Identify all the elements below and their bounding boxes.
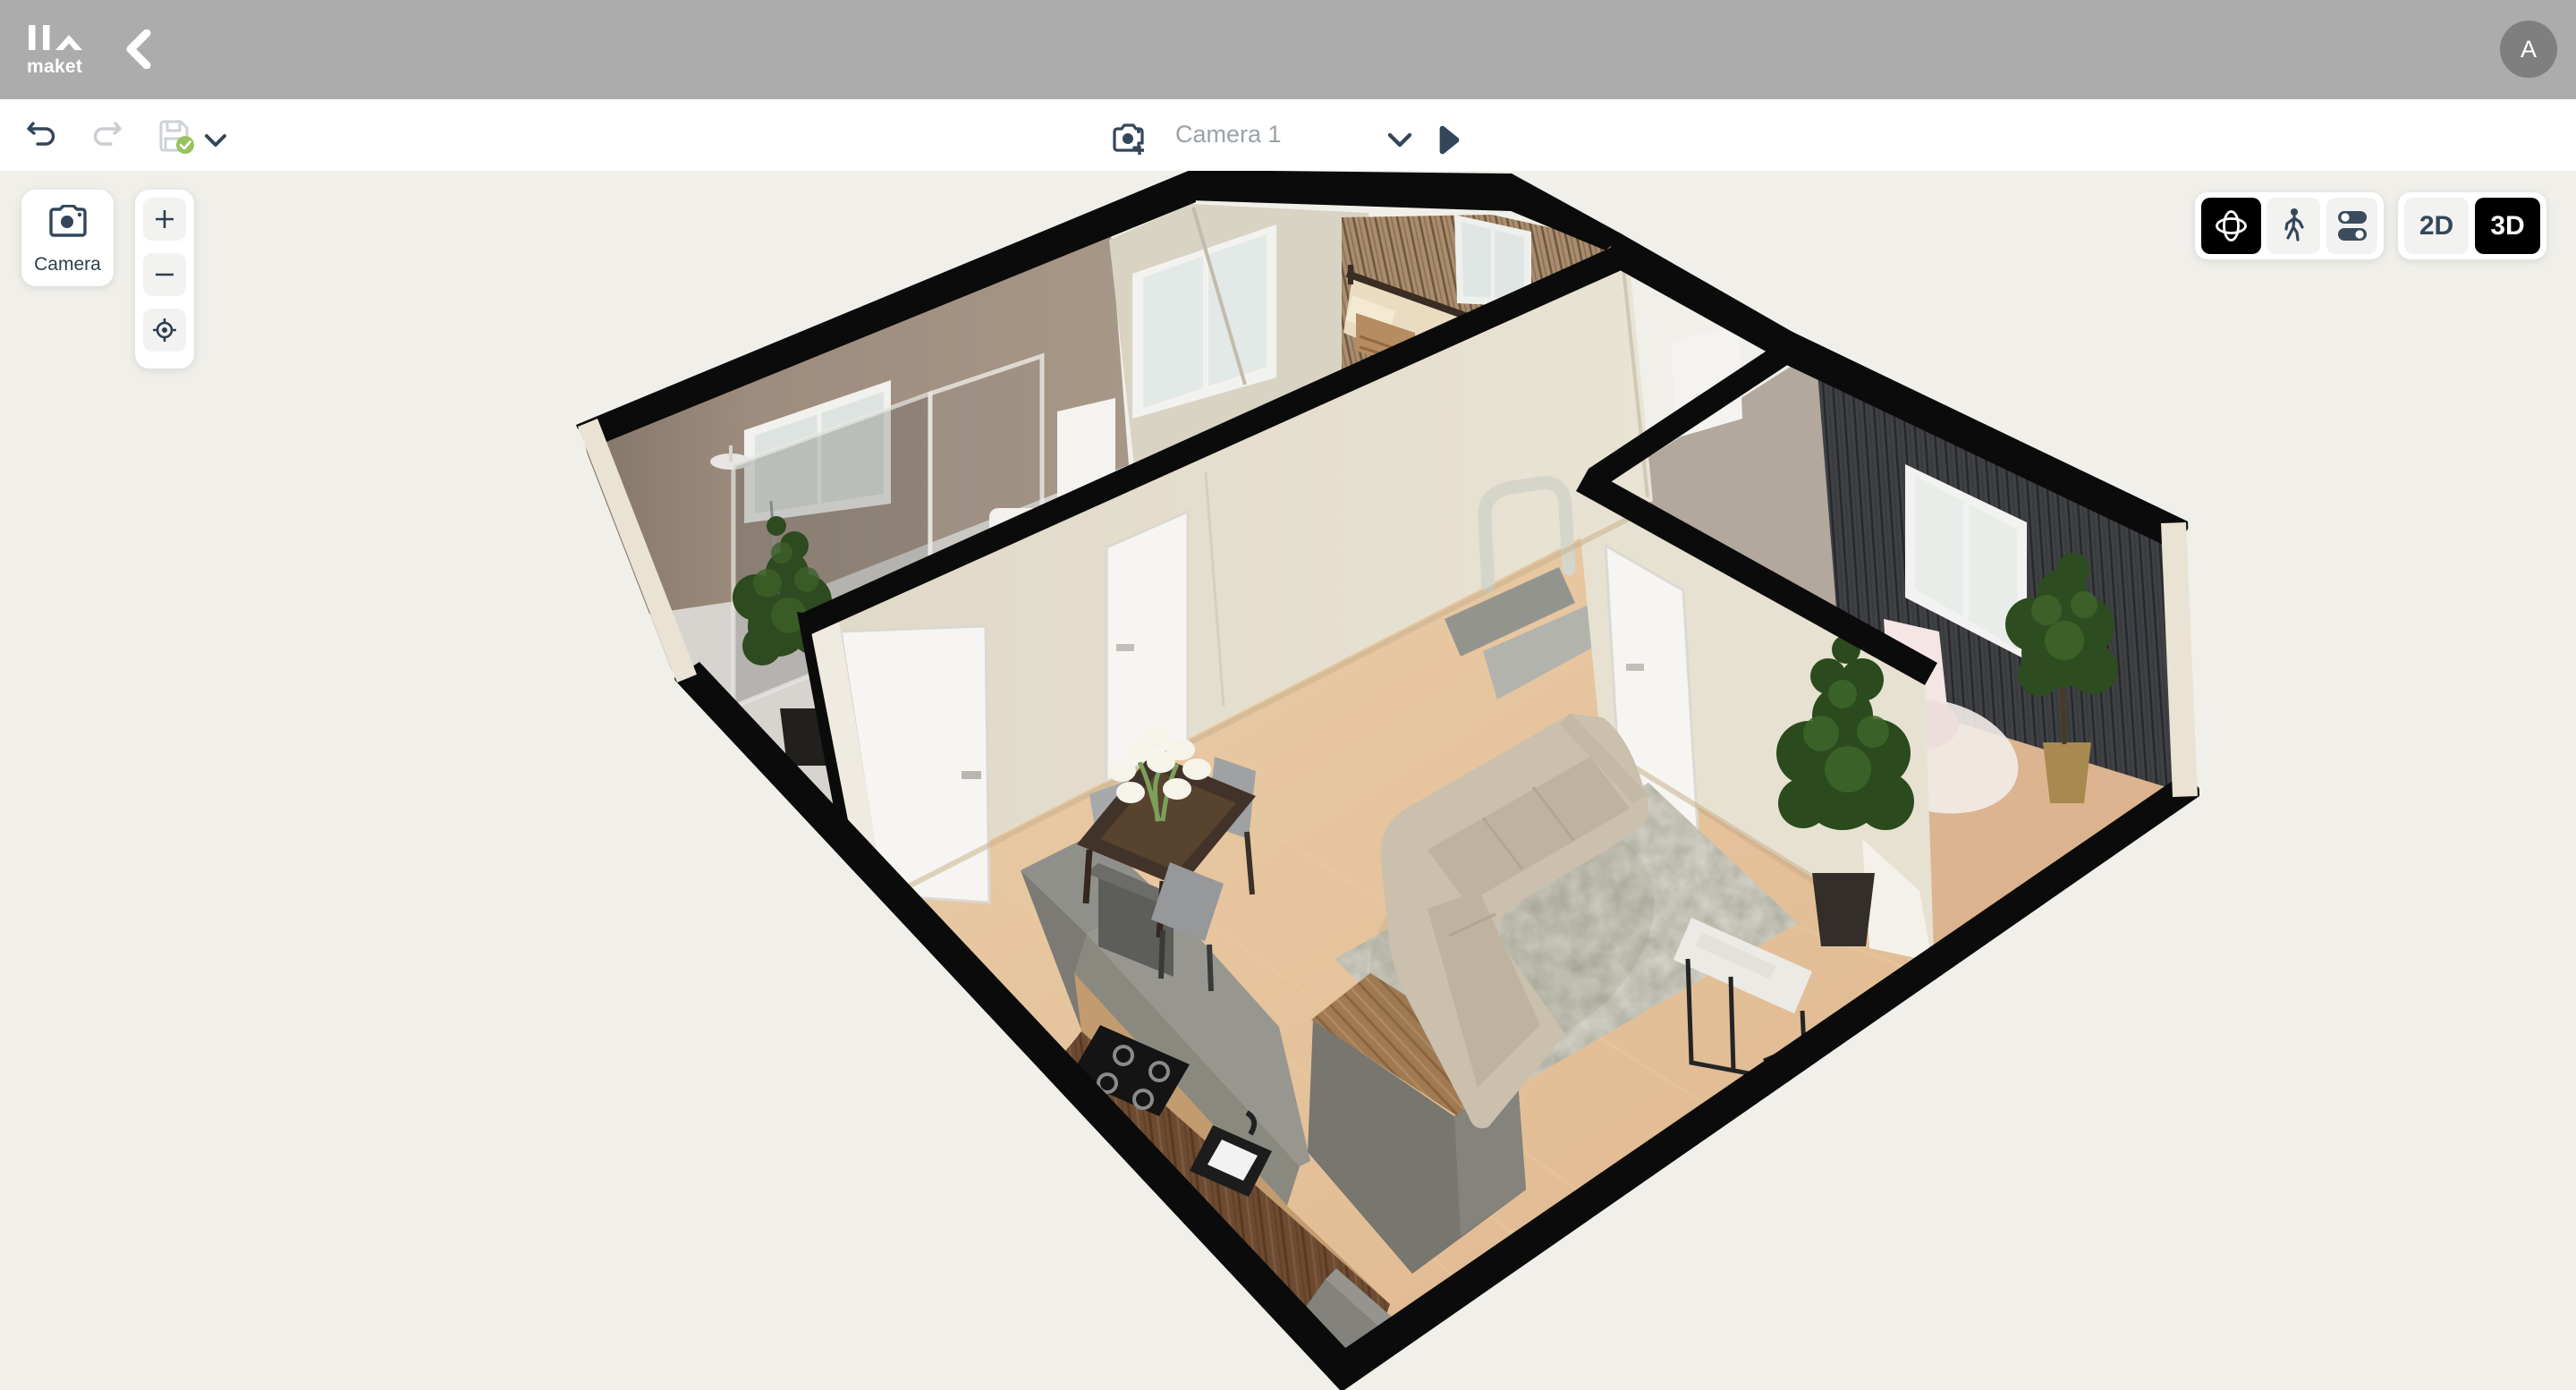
svg-text:maket: maket bbox=[27, 56, 82, 77]
